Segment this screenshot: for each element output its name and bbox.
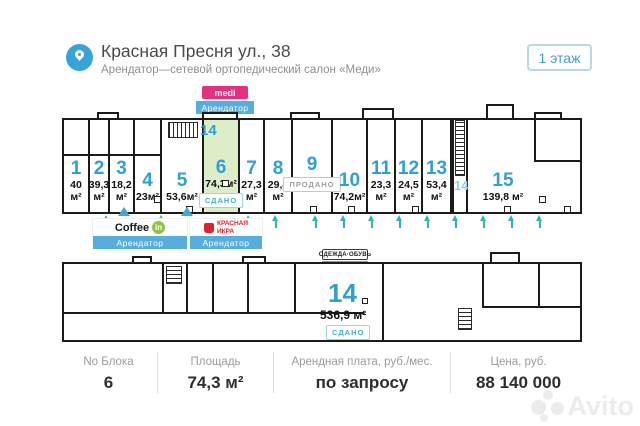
stairs-icon (166, 266, 182, 284)
plan2-bump (490, 252, 520, 262)
unit-area: 18,2 м² (110, 179, 133, 203)
coffee-callout: Coffee in Арендатор (93, 219, 187, 249)
unit-number: 4 (142, 171, 153, 190)
unit-number: 1 (71, 159, 82, 178)
unit-number: 15 (492, 171, 513, 190)
unit-area: 139,8 м² (483, 191, 523, 203)
unit-area: 27,3 м² (240, 179, 263, 203)
arrow-stem (371, 221, 373, 228)
column-marker (310, 206, 317, 213)
column-marker (222, 180, 229, 187)
unit-area: 40 м² (64, 179, 88, 203)
wm-dot (543, 390, 553, 400)
arrow-stem (539, 221, 541, 228)
unit-15: 15139,8 м² (468, 120, 580, 212)
unit-2: 239,3 м² (90, 120, 110, 212)
column-marker (504, 206, 511, 213)
arrow-stem (315, 221, 317, 228)
info-label: Арендная плата, руб./мес. (274, 356, 450, 368)
plan2-inner-wall (294, 264, 296, 312)
location-pin-icon (66, 44, 93, 71)
column-marker (412, 206, 419, 213)
unit-10: 1074,2м² (333, 120, 368, 212)
stair-unit-label: 14 (200, 122, 217, 139)
status-badge: ПРОДАНО (283, 177, 340, 192)
unit-12: 1224,5 м² (396, 120, 423, 212)
arrow-stem (399, 221, 401, 228)
unit-area: 24,5 м² (396, 179, 421, 203)
info-col-rent: Арендная плата, руб./мес. по запросу (273, 352, 450, 393)
unit-area: 53,4 м² (423, 179, 450, 203)
unit-number: 13 (426, 159, 447, 178)
column-marker (564, 206, 571, 213)
medi-brand-badge: medi (202, 86, 248, 99)
unit-number: 6 (216, 158, 227, 177)
stair-shaft: 14 (452, 120, 468, 212)
arrow-stem (483, 221, 485, 228)
unit-number: 9 (307, 155, 318, 174)
unit-area: 74,2м² (334, 191, 366, 203)
unit-number: 11 (371, 159, 391, 178)
ikra-pointer-icon (181, 207, 193, 216)
coffee-pointer-icon (118, 207, 130, 216)
info-col-price: Цена, руб. 88 140 000 (450, 352, 586, 393)
unit-9: 9ПРОДАНО (293, 120, 333, 212)
arrow-stem (427, 221, 429, 228)
unit-11: 1123,3 м² (368, 120, 396, 212)
ikra-logo: КРАСНАЯ ИКРА (190, 219, 262, 236)
unit-number: 7 (246, 159, 257, 178)
stairs-icon (455, 120, 465, 176)
info-value: по запросу (274, 373, 450, 393)
unit-1: 140 м² (64, 120, 90, 212)
plan1-cells: 140 м² 239,3 м² 318,2 м² 423м² 553,6м² 6… (64, 120, 580, 212)
info-value: 74,3 м² (158, 373, 273, 393)
floor-badge: 1 этаж (527, 44, 592, 71)
plan2-inner-wall (538, 264, 540, 306)
coffee-brand-text: Coffee (115, 222, 149, 234)
wm-dot (531, 400, 546, 415)
ikra-brand-text: КРАСНАЯ ИКРА (217, 220, 248, 235)
info-label: No Блока (60, 356, 157, 368)
plan2-outline (62, 262, 582, 342)
info-value: 6 (60, 373, 157, 393)
unit-14-area: 536,9 м² (320, 308, 366, 322)
plan2-inner-wall (382, 264, 384, 340)
status-badge: СДАНО (326, 325, 370, 340)
plan2-inner-wall (247, 264, 249, 312)
info-label: Цена, руб. (451, 356, 586, 368)
plan2-inner-wall (64, 312, 364, 314)
wm-dot (551, 402, 564, 415)
ikra-line1: КРАСНАЯ (217, 220, 248, 227)
ikra-icon (204, 223, 214, 233)
plan1-inner-wall (64, 154, 162, 156)
column-marker (362, 298, 368, 304)
unit-number: 3 (116, 159, 127, 178)
plan1-inner-wall (534, 160, 580, 162)
stair-unit-label: 14 (454, 178, 468, 193)
plan2-inner-wall (186, 264, 188, 312)
unit-13: 1353,4 м² (423, 120, 452, 212)
unit-area: 74,3м² (205, 178, 237, 190)
ikra-callout: КРАСНАЯ ИКРА Арендатор (190, 219, 262, 249)
plan2-inner-wall (162, 264, 164, 312)
floor-plan-2: 14 536,9 м² СДАНО (62, 256, 582, 344)
unit-3: 318,2 м² (110, 120, 135, 212)
unit-number: 12 (398, 159, 419, 178)
plan2-inner-wall (482, 306, 580, 308)
pin-dot (78, 53, 81, 56)
arrow-stem (511, 221, 513, 228)
info-label: Площадь (158, 356, 273, 368)
plan2-inner-wall (482, 264, 484, 306)
floor-plan-1: 140 м² 239,3 м² 318,2 м² 423м² 553,6м² 6… (62, 100, 582, 214)
page-subtitle: Арендатор—сетевой ортопедический салон «… (101, 64, 381, 76)
info-col-area: Площадь 74,3 м² (157, 352, 273, 393)
column-marker (348, 206, 355, 213)
column-marker (539, 196, 546, 203)
plan2-inner-wall (212, 264, 214, 312)
stairs-icon (168, 122, 198, 138)
unit-area: 39,3 м² (89, 179, 109, 203)
unit-area: 23,3 м² (368, 179, 394, 203)
column-marker (154, 196, 161, 203)
page-title: Красная Пресня ул., 38 (101, 41, 291, 62)
plan1-inner-wall (534, 120, 536, 160)
coffee-in-icon: in (152, 221, 165, 234)
avito-watermark-text: Avito (568, 393, 635, 420)
stairs-icon (458, 308, 472, 330)
info-col-block: No Блока 6 (60, 352, 157, 393)
avito-watermark: Avito (531, 390, 635, 422)
unit-number: 5 (177, 171, 188, 190)
arrow-stem (455, 221, 457, 228)
unit-area: 53,6м² (166, 191, 198, 203)
ikra-tenant-label: Арендатор (190, 236, 262, 249)
ikra-line2: ИКРА (217, 228, 234, 235)
wm-dot (540, 414, 548, 422)
avito-logo-icon (531, 390, 565, 422)
arrow-stem (343, 221, 345, 228)
unit-number: 8 (273, 159, 284, 178)
coffee-logo: Coffee in (93, 219, 187, 236)
unit-7: 727,3 м² (240, 120, 265, 212)
unit-14-number: 14 (328, 280, 357, 306)
coffee-tenant-label: Арендатор (93, 236, 187, 249)
unit-number: 10 (339, 171, 360, 190)
unit-number: 2 (94, 159, 105, 178)
info-bar: No Блока 6 Площадь 74,3 м² Арендная плат… (60, 352, 586, 393)
unit-8: 829,4 м² (265, 120, 293, 212)
status-badge: СДАНО (199, 193, 243, 208)
arrow-stem (275, 221, 277, 228)
